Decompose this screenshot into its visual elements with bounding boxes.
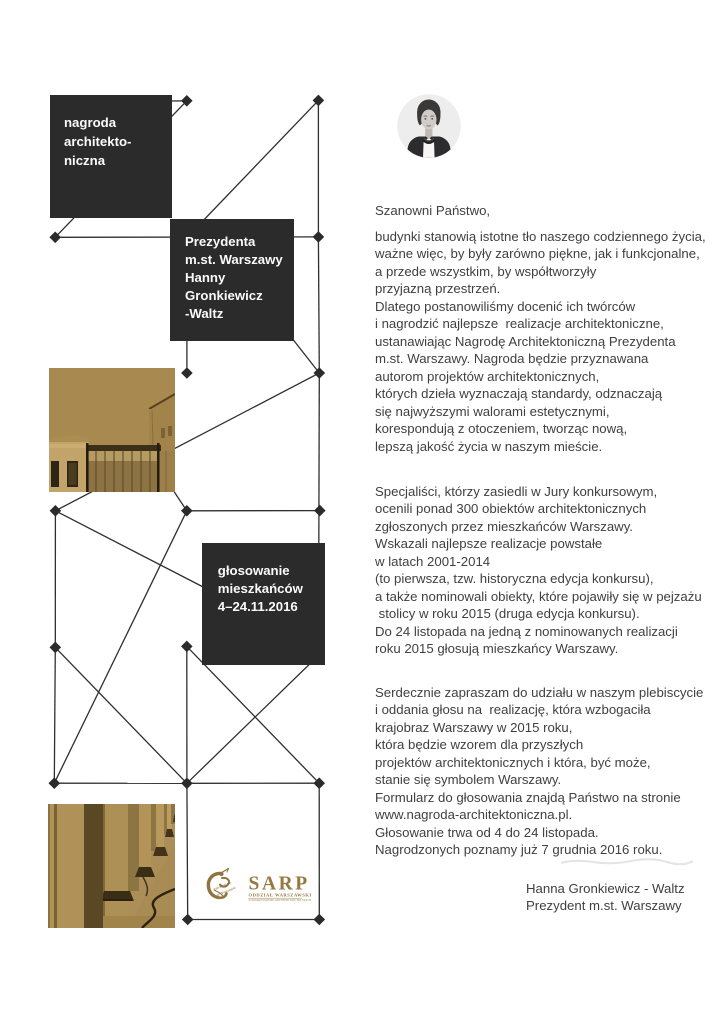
svg-text:STOWARZYSZENIE ARCHITEKTÓW POL: STOWARZYSZENIE ARCHITEKTÓW POLSKICH [249,898,311,902]
svg-text:ODDZIAŁ WARSZAWSKI: ODDZIAŁ WARSZAWSKI [249,893,312,898]
svg-text:SARP: SARP [249,874,310,895]
